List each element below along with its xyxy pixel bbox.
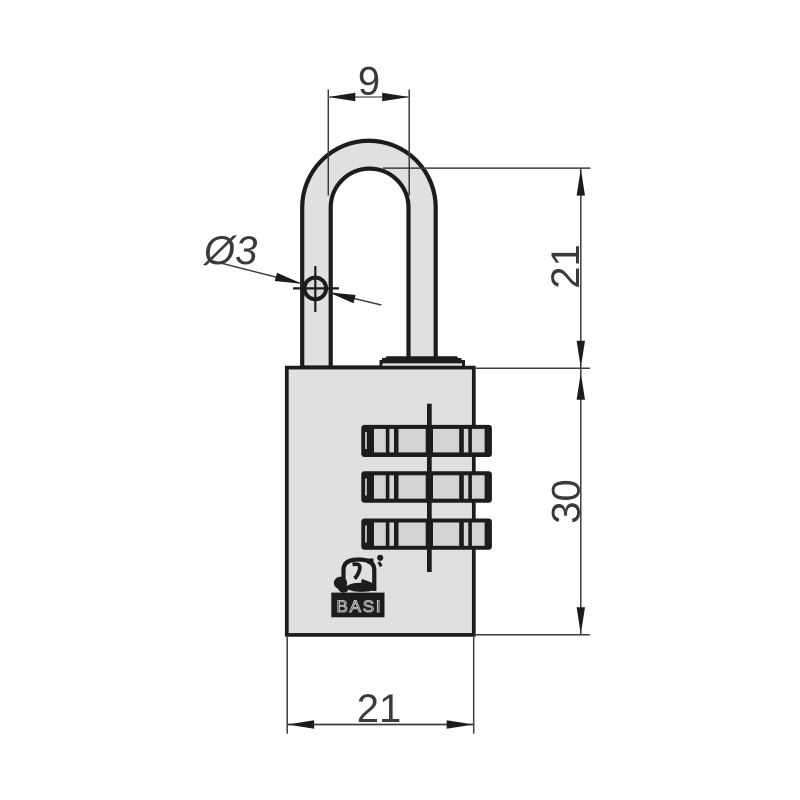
svg-text:Ø3: Ø3 xyxy=(202,229,257,273)
svg-text:9: 9 xyxy=(358,60,380,104)
svg-text:21: 21 xyxy=(357,687,402,731)
svg-text:30: 30 xyxy=(545,479,589,524)
svg-text:21: 21 xyxy=(544,244,588,289)
svg-text:BASI: BASI xyxy=(337,597,383,616)
